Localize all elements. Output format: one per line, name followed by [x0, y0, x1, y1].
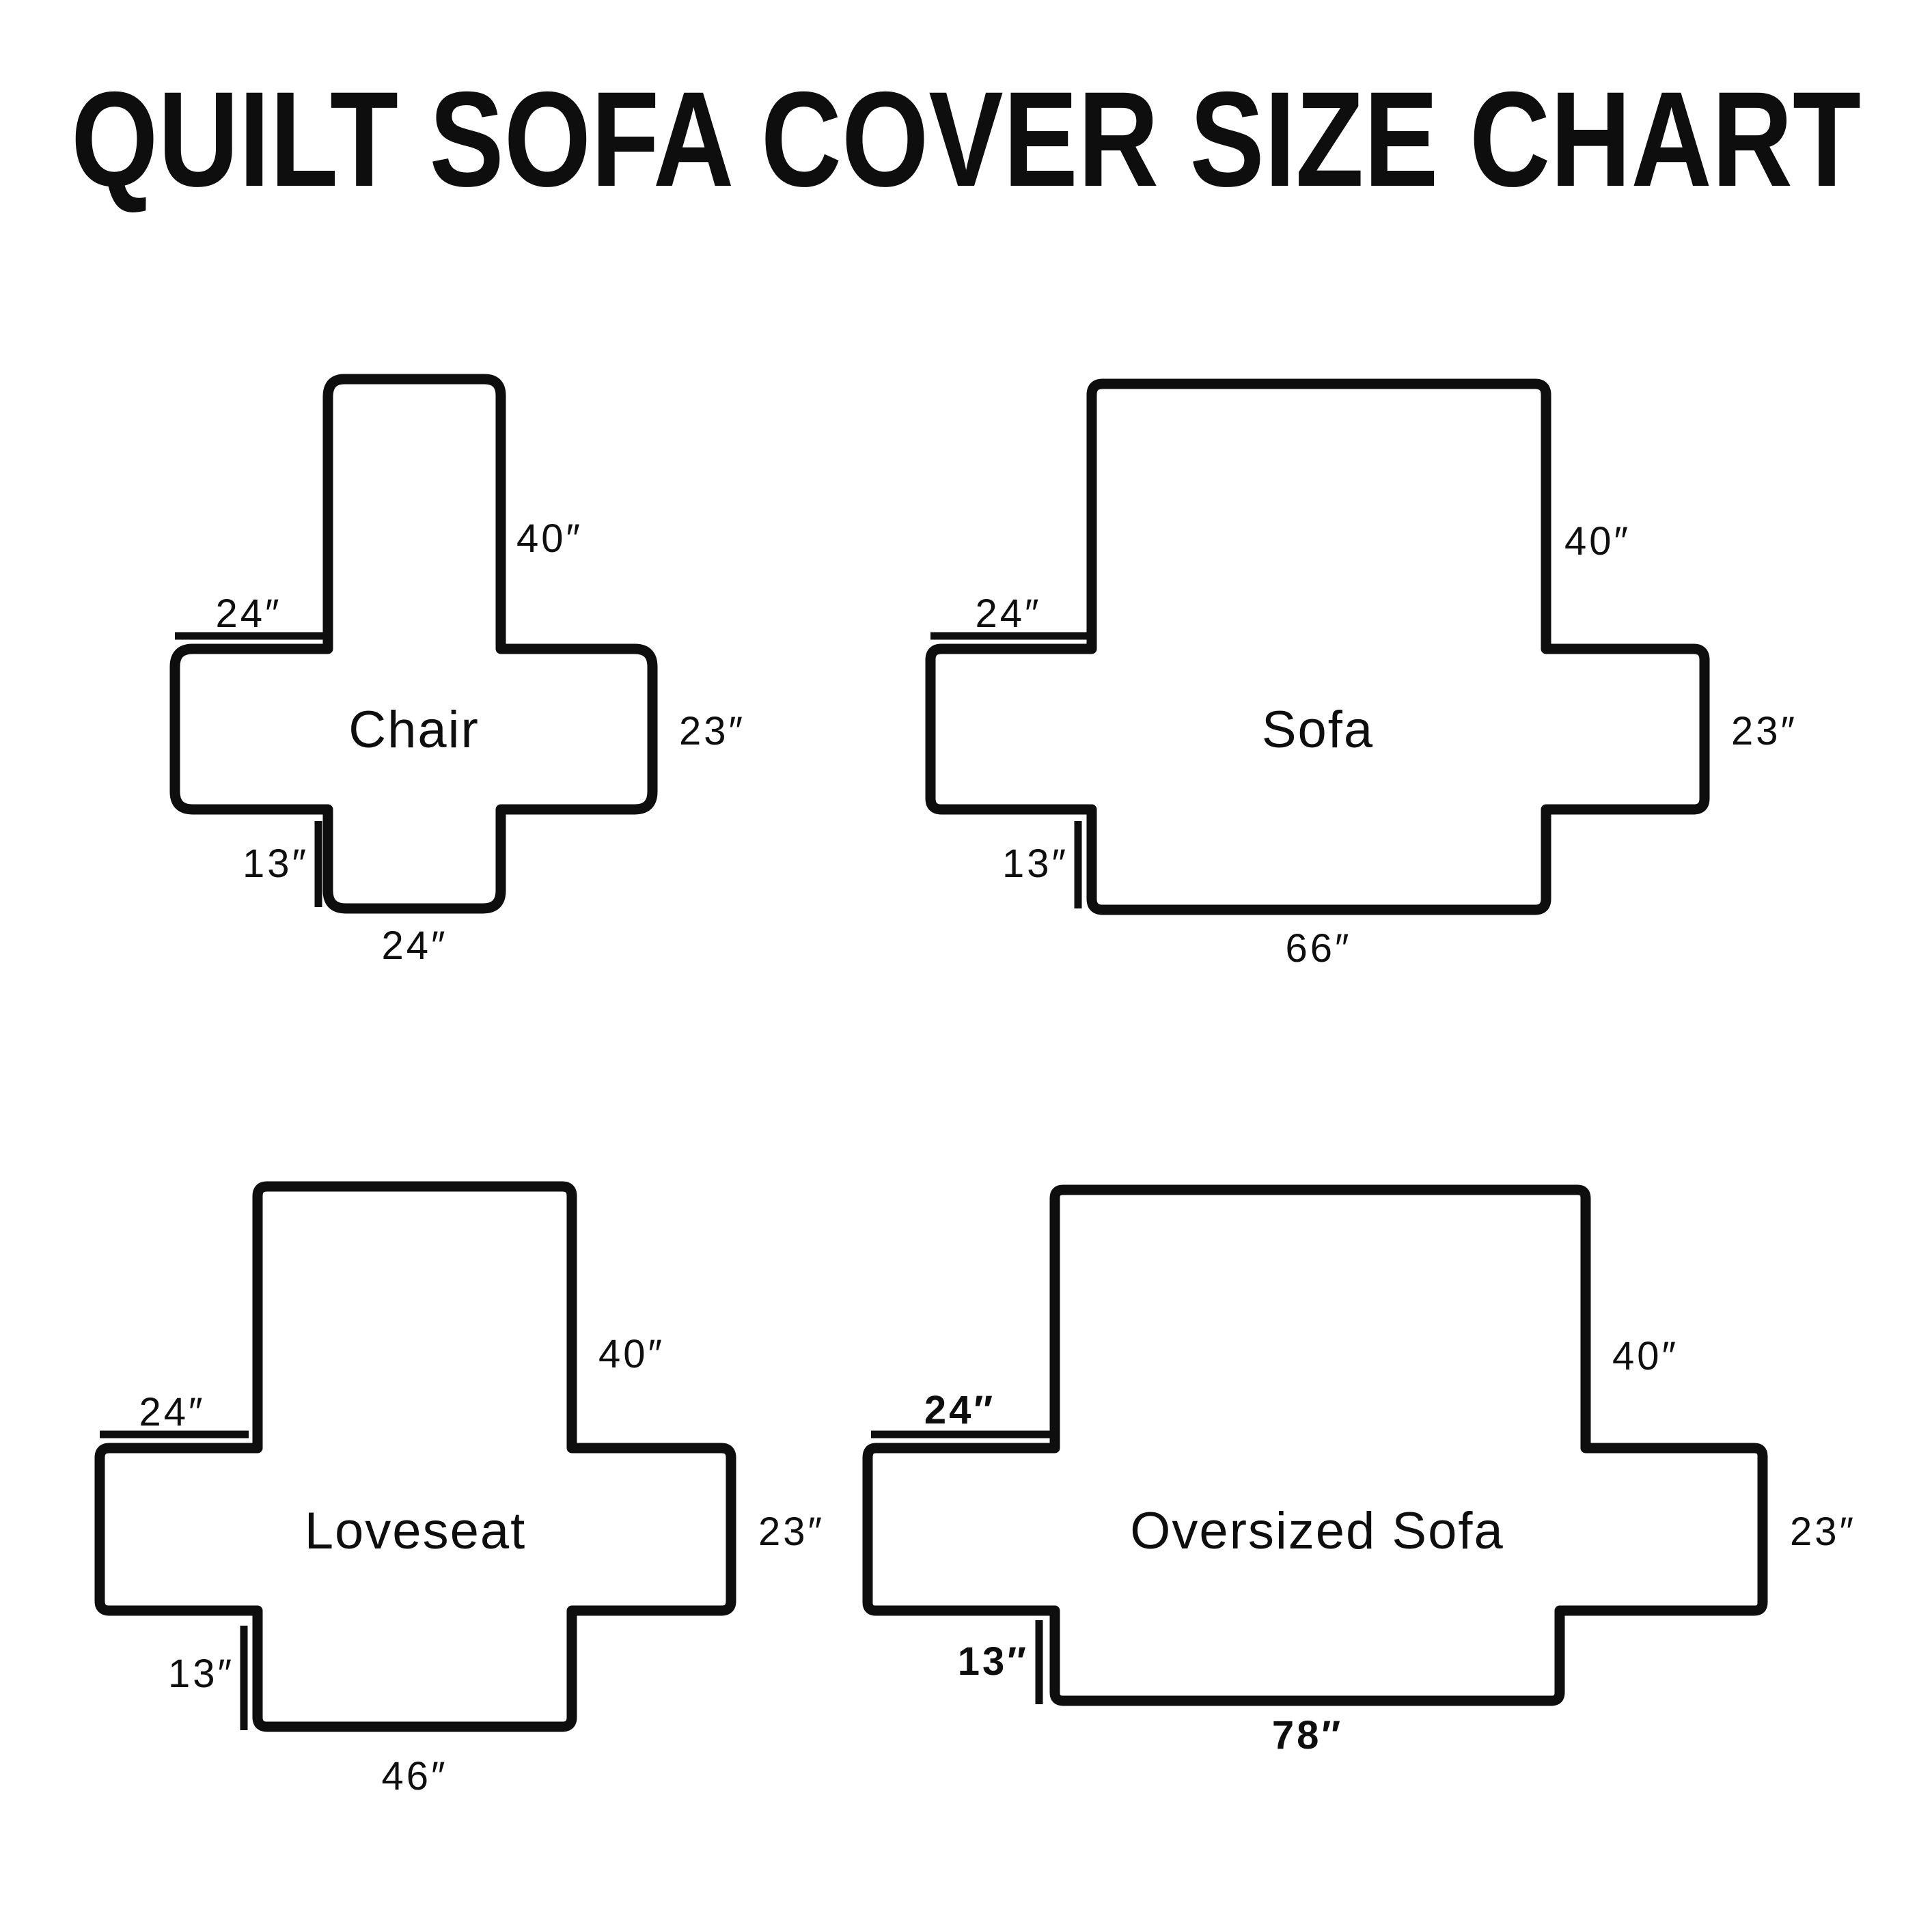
arm-width-label: 24″ [924, 1388, 995, 1432]
size-chart-canvas: QUILT SOFA COVER SIZE CHART 40″ 24″ 23″ … [0, 0, 1932, 1918]
back-height-label: 40″ [1564, 519, 1631, 564]
page-title: QUILT SOFA COVER SIZE CHART [71, 64, 1861, 214]
bottom-width-label: 46″ [381, 1754, 447, 1798]
bottom-width-label: 78″ [1272, 1713, 1343, 1757]
back-height-label: 40″ [598, 1332, 665, 1376]
arm-width-label: 24″ [215, 592, 281, 636]
front-drop-label: 13″ [243, 842, 309, 886]
front-drop-label: 13″ [168, 1652, 234, 1696]
front-drop-label: 13″ [1002, 842, 1068, 886]
back-height-label: 40″ [1612, 1334, 1679, 1378]
bottom-width-label: 24″ [381, 923, 447, 968]
cover-name-label: Oversized Sofa [1130, 1502, 1504, 1560]
arm-width-label: 24″ [139, 1390, 205, 1434]
arm-width-label: 24″ [975, 592, 1041, 636]
cover-name-label: Loveseat [305, 1502, 526, 1560]
side-height-label: 23″ [1731, 709, 1797, 753]
bottom-width-label: 66″ [1285, 926, 1351, 971]
cover-name-label: Chair [348, 701, 480, 759]
front-drop-label: 13″ [958, 1639, 1029, 1684]
side-height-label: 23″ [758, 1510, 825, 1554]
side-height-label: 23″ [1790, 1510, 1856, 1554]
side-height-label: 23″ [679, 709, 745, 753]
back-height-label: 40″ [516, 516, 583, 561]
cover-name-label: Sofa [1262, 701, 1374, 759]
